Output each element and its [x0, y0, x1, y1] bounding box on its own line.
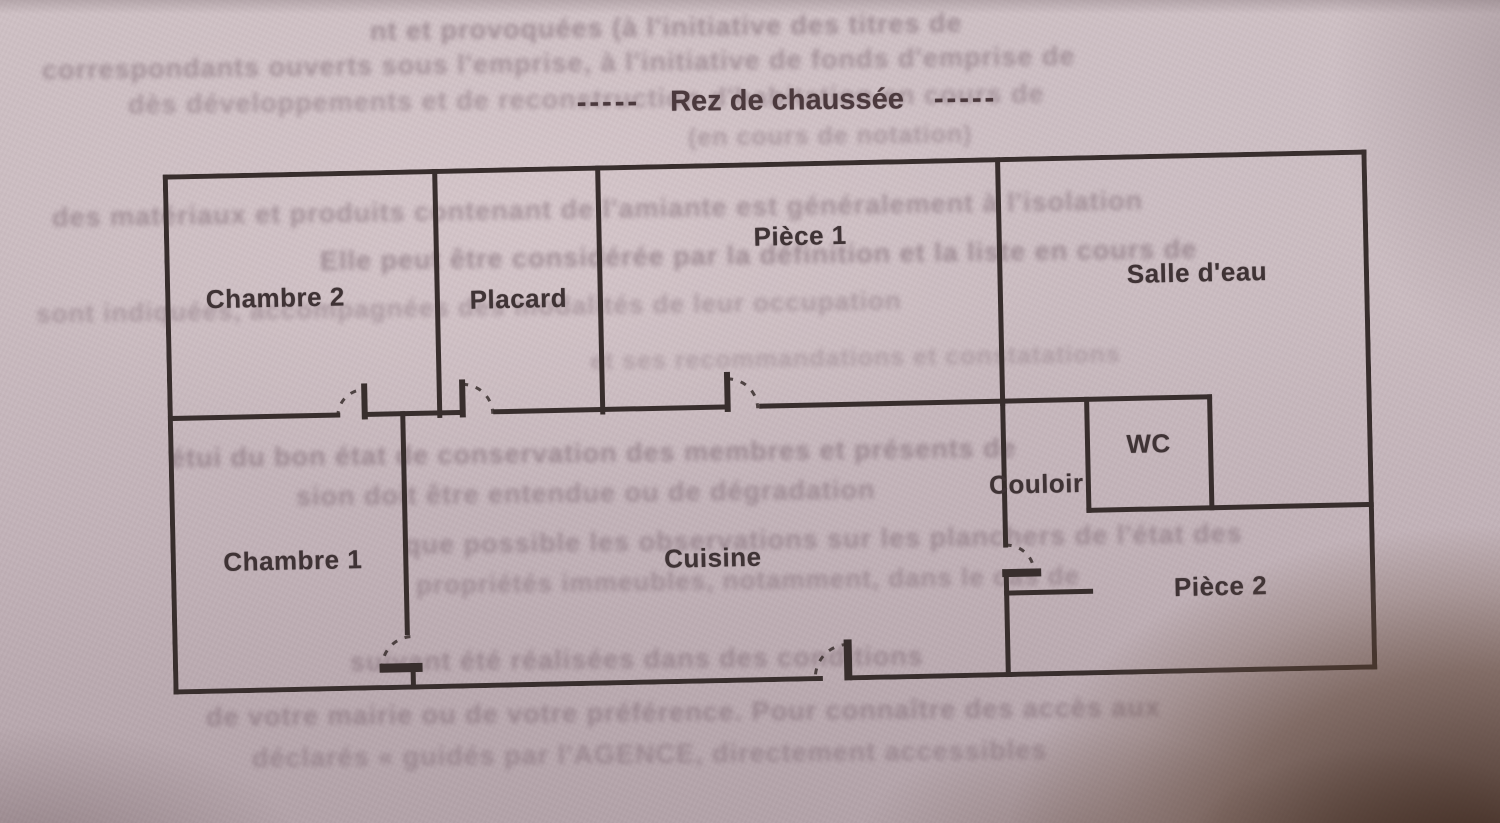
scanned-page: nt et provoquées (à l'initiative des tit… [0, 0, 1500, 823]
plan-title: ----- Rez de chaussée ----- [577, 82, 998, 119]
wall-wc-left [1087, 399, 1089, 510]
door-arc-placard [462, 384, 493, 415]
room-label-salle-deau: Salle d'eau [1127, 256, 1268, 290]
room-label-chambre-2: Chambre 2 [206, 281, 346, 315]
title-dashes-right: ----- [934, 82, 998, 115]
bleedthrough-text-line: nt et provoquées (à l'initiative des tit… [370, 8, 963, 47]
bleedthrough-text-line: déclarés « guidés par l'AGENCE, directem… [252, 735, 1048, 774]
page-title: Rez de chaussée [670, 83, 904, 117]
door-arc-chambre2 [337, 389, 365, 417]
door-leaf-chambre1 [384, 667, 418, 668]
door-leaf-placard [462, 382, 463, 414]
wall-outer-top [165, 152, 1364, 177]
wall-outer-bottom-left [176, 679, 820, 692]
door-leaf-chambre2 [364, 386, 365, 416]
door-arc-piece1 [727, 378, 758, 409]
wall-wc-right [1210, 397, 1212, 508]
room-label-wc: WC [1126, 428, 1171, 460]
room-label-placard: Placard [469, 283, 567, 316]
room-label-cuisine: Cuisine [664, 542, 762, 575]
room-label-piece-1: Pièce 1 [753, 220, 847, 253]
wall-chambre1-cuisine [403, 414, 408, 633]
room-label-piece-2: Pièce 2 [1174, 570, 1268, 603]
wall-wc-bottom-piece2-top [1089, 504, 1371, 510]
wall-middle-seg3 [496, 407, 728, 412]
wall-outer-left [165, 177, 176, 692]
room-label-couloir: Couloir [989, 468, 1084, 501]
floor-plan: Chambre 2 Placard Pièce 1 Salle d'eau WC… [163, 149, 1378, 694]
bleedthrough-text-line: correspondants ouverts sous l'emprise, à… [42, 41, 1076, 86]
wall-couloir-left-lower [1006, 573, 1008, 674]
wall-outer-bottom-right [852, 667, 1374, 678]
bleedthrough-text-line: (en cours de notation) [688, 120, 973, 152]
wall-outer-right [1364, 152, 1375, 667]
wall-middle-seg4 [762, 397, 1210, 406]
wall-middle-seg1 [170, 415, 337, 419]
wall-middle-seg2 [365, 412, 463, 414]
door-arc-cuisine [815, 644, 849, 678]
wall-couloir-bottom [1007, 591, 1091, 593]
title-dashes-left: ----- [577, 86, 641, 119]
door-leaf-cuisine [848, 643, 849, 676]
wall-placard-piece1 [598, 168, 603, 412]
wall-piece1-salledeau [998, 160, 1003, 404]
room-label-chambre-1: Chambre 1 [223, 544, 363, 578]
bleedthrough-text-line: de votre mairie ou de votre préférence. … [206, 692, 1161, 733]
door-leaf-couloir [1006, 572, 1037, 573]
door-arc-chambre1 [381, 637, 411, 668]
wall-chambre2-placard [435, 171, 440, 415]
